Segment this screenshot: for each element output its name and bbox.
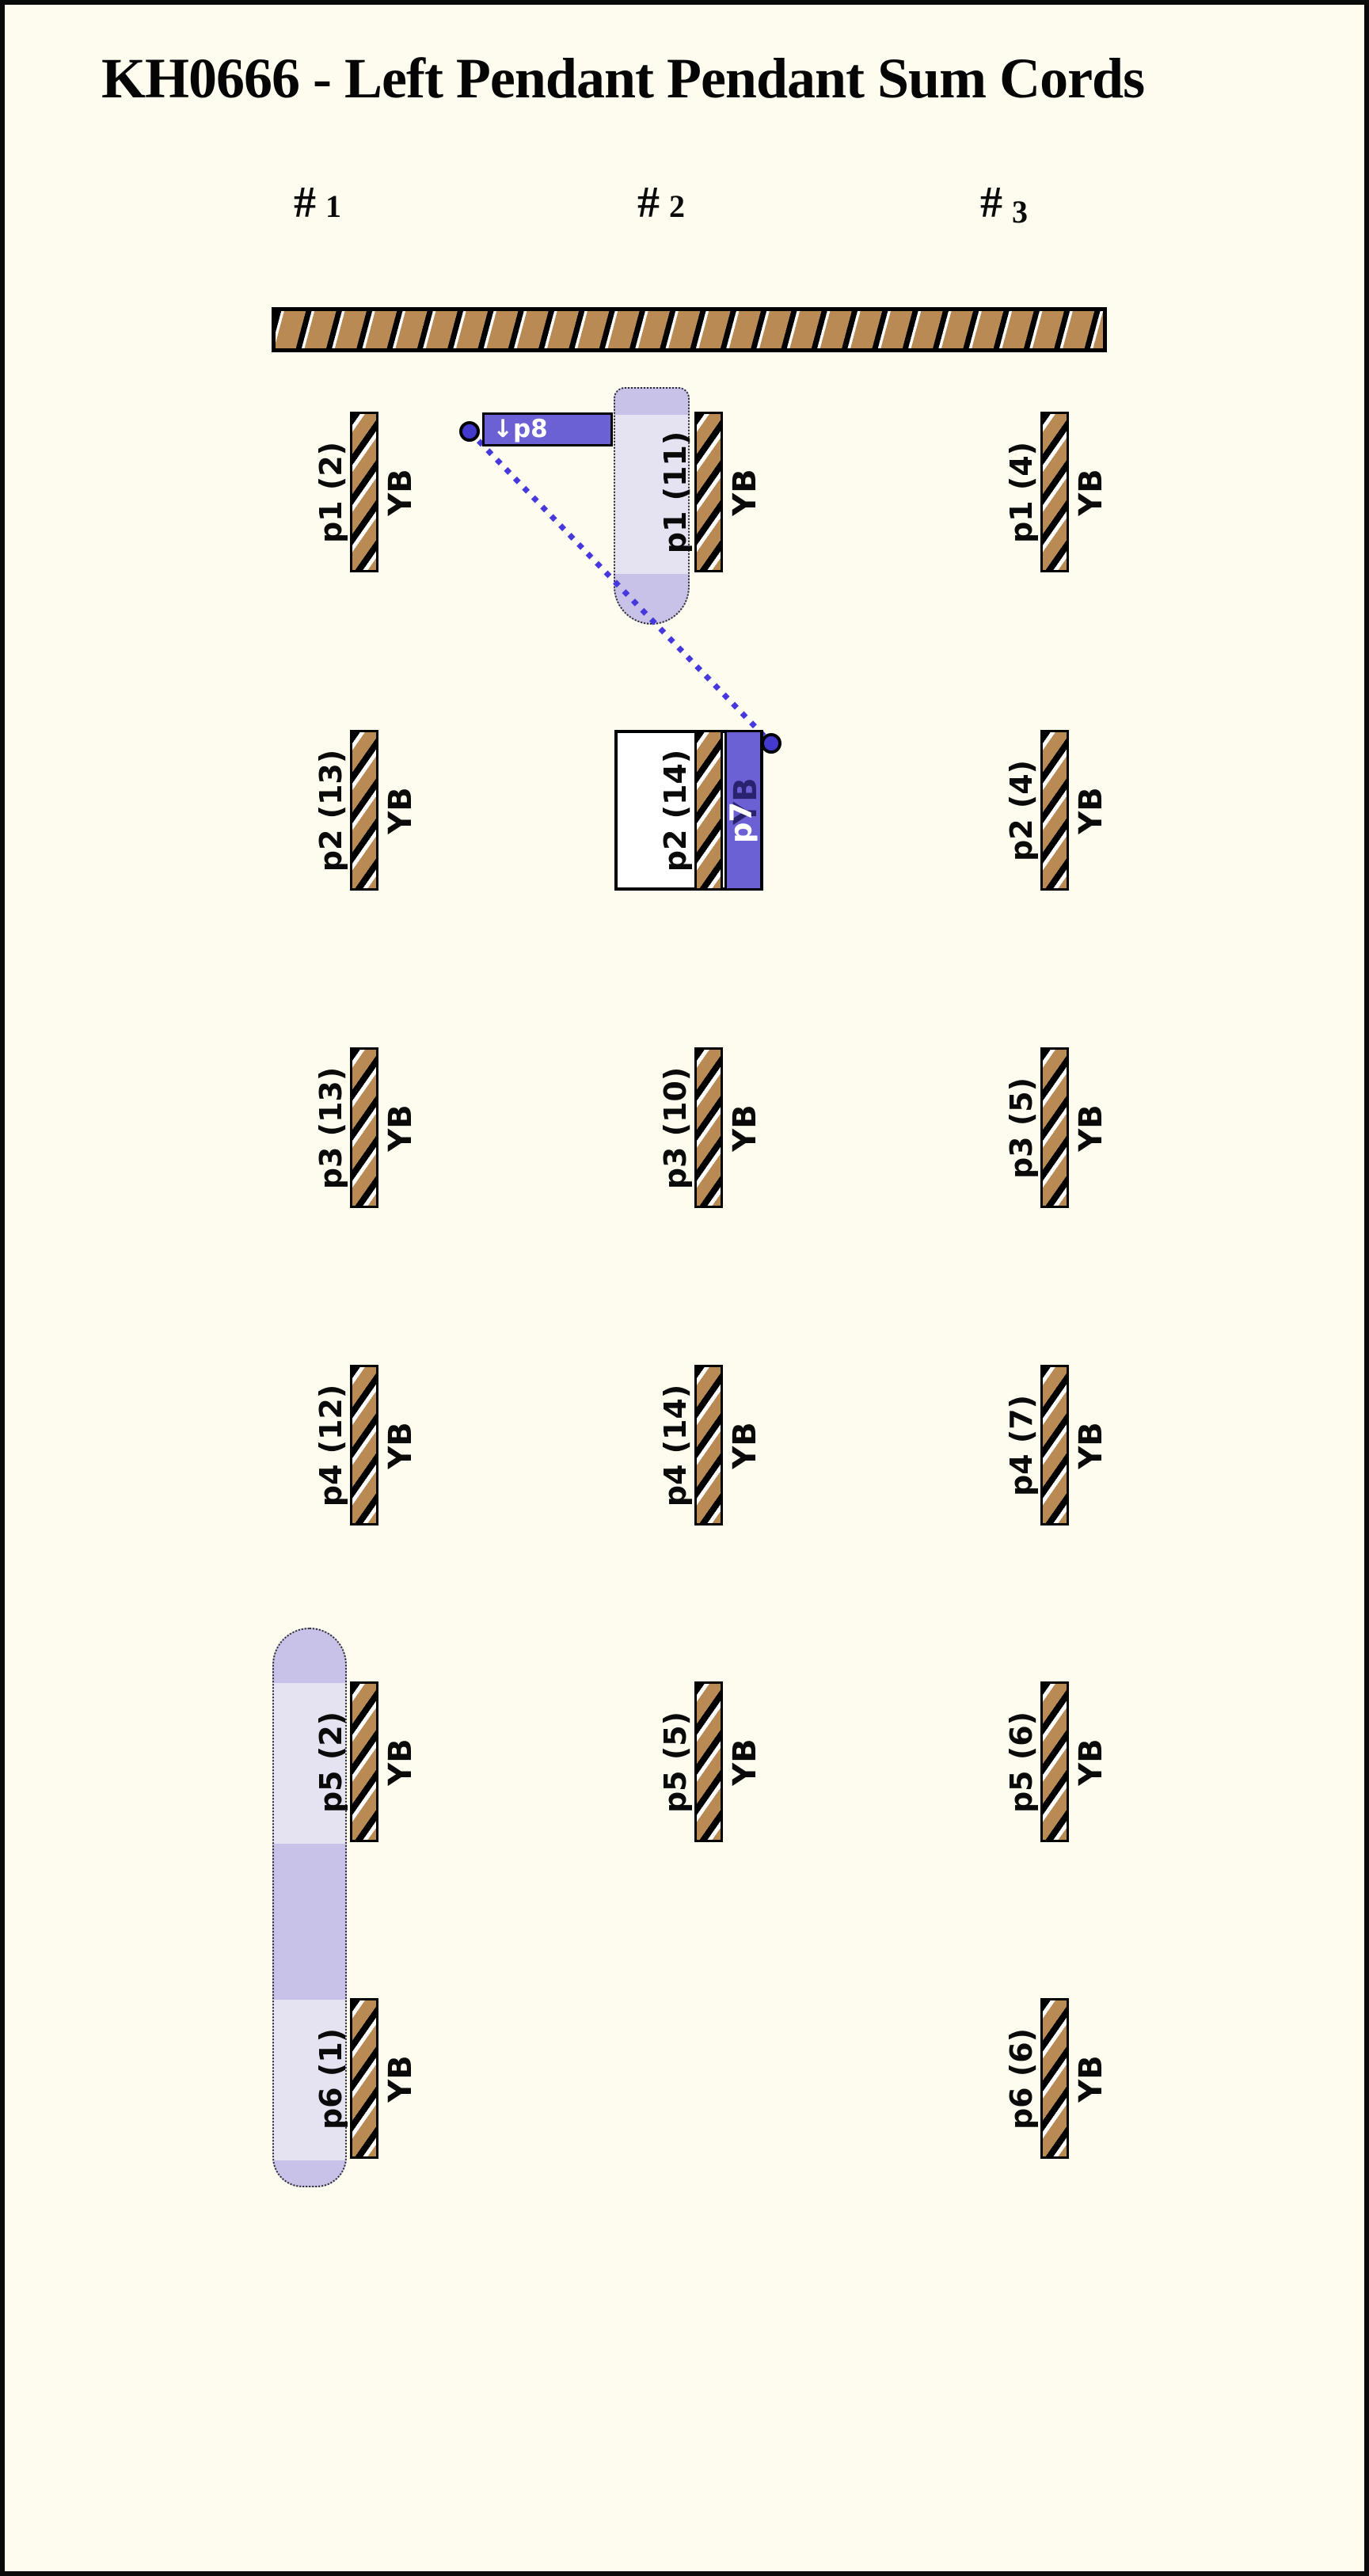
pendant-group: p5 (2) YB: [350, 1681, 378, 1842]
pendant-group: p4 (14) YB: [694, 1365, 723, 1525]
pendant-cord-bar[interactable]: [694, 1681, 723, 1842]
pendant-label: p2 (4): [1004, 759, 1039, 861]
pendant-group: p5 (5) YB: [694, 1681, 723, 1842]
color-code-label: YB: [382, 2055, 419, 2102]
color-code-label: YB: [1073, 1104, 1109, 1151]
color-code-label: YB: [1073, 1422, 1109, 1468]
sum-link-dotted-line: [5, 5, 1369, 2576]
pendant-cord-bar[interactable]: [694, 1047, 723, 1208]
pendant-group: p2 (14) YB: [694, 730, 723, 891]
pendant-label: p3 (10): [658, 1066, 693, 1189]
sum-cord-p7-bar[interactable]: YB p7: [724, 730, 762, 891]
pendant-cord-bar[interactable]: [1040, 1998, 1069, 2159]
pendant-label: p2 (14): [658, 749, 693, 872]
pendant-cord-bar[interactable]: [694, 730, 723, 891]
pendant-cord-bar[interactable]: [350, 1681, 378, 1842]
pendant-group: p1 (2) YB: [350, 412, 378, 572]
color-code-label: YB: [1073, 1738, 1109, 1785]
pendant-cord-bar[interactable]: [694, 1365, 723, 1525]
pendant-cord-bar[interactable]: [694, 412, 723, 572]
pendant-label: p1 (11): [658, 431, 693, 553]
pendant-label: p6 (1): [314, 2027, 348, 2129]
color-code-label: YB: [727, 1422, 763, 1468]
sum-cord-p7-label: p7: [724, 802, 759, 843]
pendant-cord-bar[interactable]: [350, 1998, 378, 2159]
pendant-label: p1 (2): [314, 441, 348, 542]
pendant-group: p3 (13) YB: [350, 1047, 378, 1208]
pendant-cord-bar[interactable]: [350, 1365, 378, 1525]
color-code-label: YB: [382, 1104, 419, 1151]
color-code-label: YB: [1073, 469, 1109, 515]
pendant-cord-bar[interactable]: [1040, 730, 1069, 891]
pendant-label: p5 (6): [1004, 1711, 1039, 1812]
pendant-cord-bar[interactable]: [350, 412, 378, 572]
pendant-label: p5 (5): [658, 1711, 693, 1812]
pendant-cord-bar[interactable]: [1040, 1681, 1069, 1842]
color-code-label: YB: [727, 469, 763, 515]
pendant-cord-bar[interactable]: [1040, 1047, 1069, 1208]
pendant-label: p4 (14): [658, 1384, 693, 1506]
link-endpoint-p7-circle[interactable]: [761, 733, 781, 754]
pendant-label: p6 (6): [1004, 2027, 1039, 2129]
pendant-group: p2 (4) YB: [1040, 730, 1069, 891]
pendant-group: p1 (11) YB: [694, 412, 723, 572]
color-code-label: YB: [1073, 787, 1109, 834]
color-code-label: YB: [1073, 2055, 1109, 2102]
pendant-label: p1 (4): [1004, 441, 1039, 542]
pendant-group: p4 (7) YB: [1040, 1365, 1069, 1525]
sum-cord-p8-tag[interactable]: ↓p8: [482, 412, 613, 446]
pendant-label: p3 (5): [1004, 1077, 1039, 1178]
pendant-group: p4 (12) YB: [350, 1365, 378, 1525]
pendant-group: p5 (6) YB: [1040, 1681, 1069, 1842]
color-code-label: YB: [382, 1738, 419, 1785]
link-endpoint-p8-circle[interactable]: [459, 421, 480, 442]
pendant-cord-bar[interactable]: [350, 730, 378, 891]
pendant-group: p2 (13) YB: [350, 730, 378, 891]
pendant-label: p4 (7): [1004, 1394, 1039, 1495]
pendant-group: p3 (5) YB: [1040, 1047, 1069, 1208]
pendant-cord-bar[interactable]: [350, 1047, 378, 1208]
pendant-label: p2 (13): [314, 749, 348, 872]
color-code-label: YB: [727, 1104, 763, 1151]
primary-cord-bar[interactable]: [272, 307, 1107, 352]
color-code-label: YB: [382, 469, 419, 515]
color-code-label: YB: [382, 787, 419, 834]
color-code-label: YB: [382, 1422, 419, 1468]
pendant-group: p6 (6) YB: [1040, 1998, 1069, 2159]
pendant-label: p5 (2): [314, 1711, 348, 1812]
pendant-group: p6 (1) YB: [350, 1998, 378, 2159]
pendant-label: p3 (13): [314, 1066, 348, 1189]
pendant-cord-bar[interactable]: [1040, 412, 1069, 572]
pendant-label: p4 (12): [314, 1384, 348, 1506]
color-code-label: YB: [727, 1738, 763, 1785]
khipu-diagram: KH0666 - Left Pendant Pendant Sum Cords …: [0, 0, 1369, 2576]
pendant-group: p1 (4) YB: [1040, 412, 1069, 572]
pendant-cord-bar[interactable]: [1040, 1365, 1069, 1525]
pendant-group: p3 (10) YB: [694, 1047, 723, 1208]
